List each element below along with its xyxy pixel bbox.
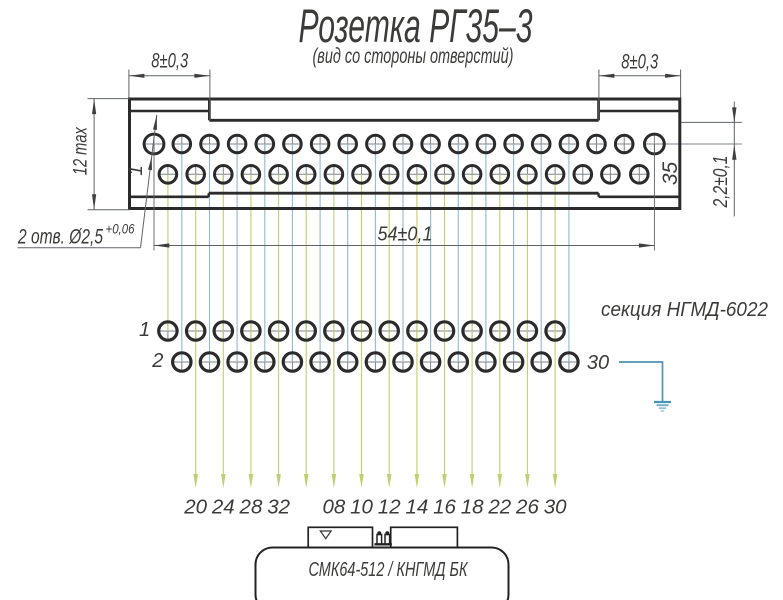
svg-text:2 отв. Ø2,5: 2 отв. Ø2,5 — [17, 226, 103, 249]
svg-text:14: 14 — [405, 496, 428, 519]
svg-text:30: 30 — [544, 496, 567, 519]
svg-text:30: 30 — [587, 352, 609, 374]
svg-text:12 max: 12 max — [70, 126, 92, 175]
svg-text:10: 10 — [350, 496, 373, 519]
svg-text:8±0,3: 8±0,3 — [151, 50, 188, 73]
svg-text:(вид со стороны отверстий): (вид со стороны отверстий) — [313, 45, 514, 68]
svg-text:СМК64-512 / КНГМД БК: СМК64-512 / КНГМД БК — [309, 558, 469, 581]
svg-text:12: 12 — [378, 496, 401, 519]
svg-text:1: 1 — [139, 319, 150, 341]
svg-text:20: 20 — [183, 496, 207, 519]
svg-text:2,2±0,1: 2,2±0,1 — [710, 156, 732, 209]
svg-text:08: 08 — [322, 496, 345, 519]
svg-text:2: 2 — [151, 350, 163, 372]
svg-text:16: 16 — [433, 496, 456, 519]
svg-text:35: 35 — [659, 162, 682, 186]
svg-text:28: 28 — [239, 496, 263, 519]
svg-text:8±0,3: 8±0,3 — [621, 51, 658, 74]
svg-text:26: 26 — [515, 496, 539, 519]
svg-text:54±0,1: 54±0,1 — [378, 223, 433, 246]
svg-text:22: 22 — [487, 496, 511, 519]
svg-text:+0,06: +0,06 — [106, 222, 135, 237]
svg-text:секция НГМД-6022: секция НГМД-6022 — [601, 299, 768, 321]
svg-text:18: 18 — [461, 496, 484, 519]
svg-text:1: 1 — [126, 165, 147, 176]
svg-text:32: 32 — [267, 496, 290, 519]
svg-text:24: 24 — [211, 496, 235, 519]
